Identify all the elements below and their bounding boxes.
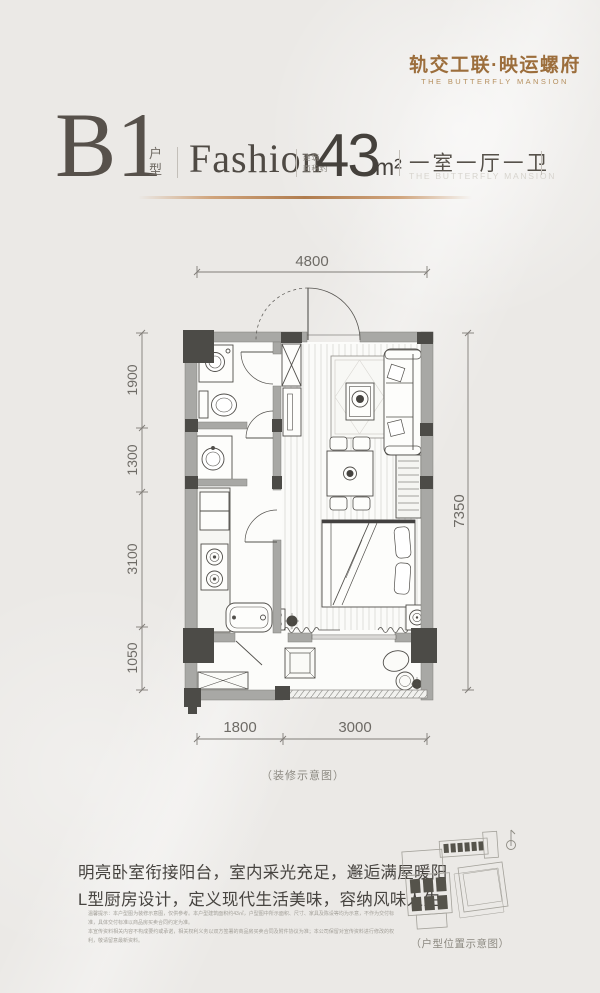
header-divider bbox=[399, 150, 400, 176]
brand-logo-subtitle: THE BUTTERFLY MANSION bbox=[395, 77, 595, 86]
site-building-outline bbox=[416, 913, 447, 929]
washbasin-icon bbox=[197, 436, 232, 480]
dim-left-4: 1050 bbox=[124, 642, 140, 673]
brand-logo-title: 轨交工联·映运螺府 bbox=[395, 50, 595, 77]
dim-top-label: 4800 bbox=[295, 253, 328, 270]
coffee-table-icon bbox=[346, 383, 374, 420]
unit-code-suffix: 户型 bbox=[149, 146, 164, 179]
gold-gradient-rule bbox=[138, 196, 472, 199]
header-divider bbox=[177, 147, 178, 178]
sliding-door bbox=[312, 635, 396, 639]
plan-caption: （装修示意图） bbox=[203, 767, 403, 783]
header-divider bbox=[296, 149, 297, 177]
site-location-map bbox=[390, 816, 575, 931]
site-map-caption: （户型位置示意图） bbox=[405, 936, 515, 951]
description-line-2: L型厨房设计，定义现代生活美味，容纳风味人生 bbox=[78, 886, 440, 910]
bed-icon bbox=[322, 520, 415, 607]
area-value: 43 bbox=[316, 126, 379, 186]
dim-bottom-2: 3000 bbox=[338, 719, 371, 736]
drying-rack-icon bbox=[198, 672, 248, 689]
sofa-icon bbox=[384, 349, 422, 455]
site-building-outline bbox=[402, 849, 444, 876]
tv-cabinet-icon bbox=[396, 455, 421, 518]
floor-plan: 4800 1900 1300 3100 1050 7350 bbox=[100, 245, 500, 765]
poster-page: 轨交工联·映运螺府 THE BUTTERFLY MANSION B1 户型 Fa… bbox=[0, 0, 600, 993]
entry-cabinet-icon bbox=[283, 388, 301, 436]
disclaimer-text: 温馨提示：本户型图为装修示意图，仅供参考。本户型建筑面积约43㎡，户型图中所示面… bbox=[88, 910, 394, 946]
dim-left-1: 1900 bbox=[124, 364, 140, 395]
site-units-dark-block bbox=[410, 877, 448, 911]
disclaimer-line-1: 温馨提示：本户型图为装修示意图，仅供参考。本户型建筑面积约43㎡，户型图中所示面… bbox=[88, 910, 394, 928]
disclaimer-line-2: 本宣传资料相关内容不构成要约或承诺，相关权利义务以双方签署的商品房买卖合同及附件… bbox=[88, 928, 394, 946]
dim-left-2: 1300 bbox=[124, 444, 140, 475]
rooms-sublabel: THE BUTTERFLY MANSION bbox=[409, 171, 556, 181]
bathtub-icon bbox=[226, 603, 272, 632]
balcony-railing bbox=[283, 690, 427, 698]
site-podium-outline bbox=[454, 862, 508, 918]
dim-right: 7350 bbox=[451, 494, 468, 527]
stove-icon bbox=[201, 544, 228, 590]
planter-icon bbox=[285, 648, 315, 678]
dim-left-3: 3100 bbox=[124, 543, 140, 574]
header-divider bbox=[541, 151, 542, 175]
north-arrow-icon bbox=[507, 830, 516, 850]
dim-bottom-1: 1800 bbox=[223, 719, 256, 736]
area-unit: m² bbox=[375, 154, 402, 181]
site-units-dark-row bbox=[443, 841, 484, 853]
shaft-icon bbox=[282, 344, 301, 386]
unit-code: B1 bbox=[55, 99, 162, 191]
